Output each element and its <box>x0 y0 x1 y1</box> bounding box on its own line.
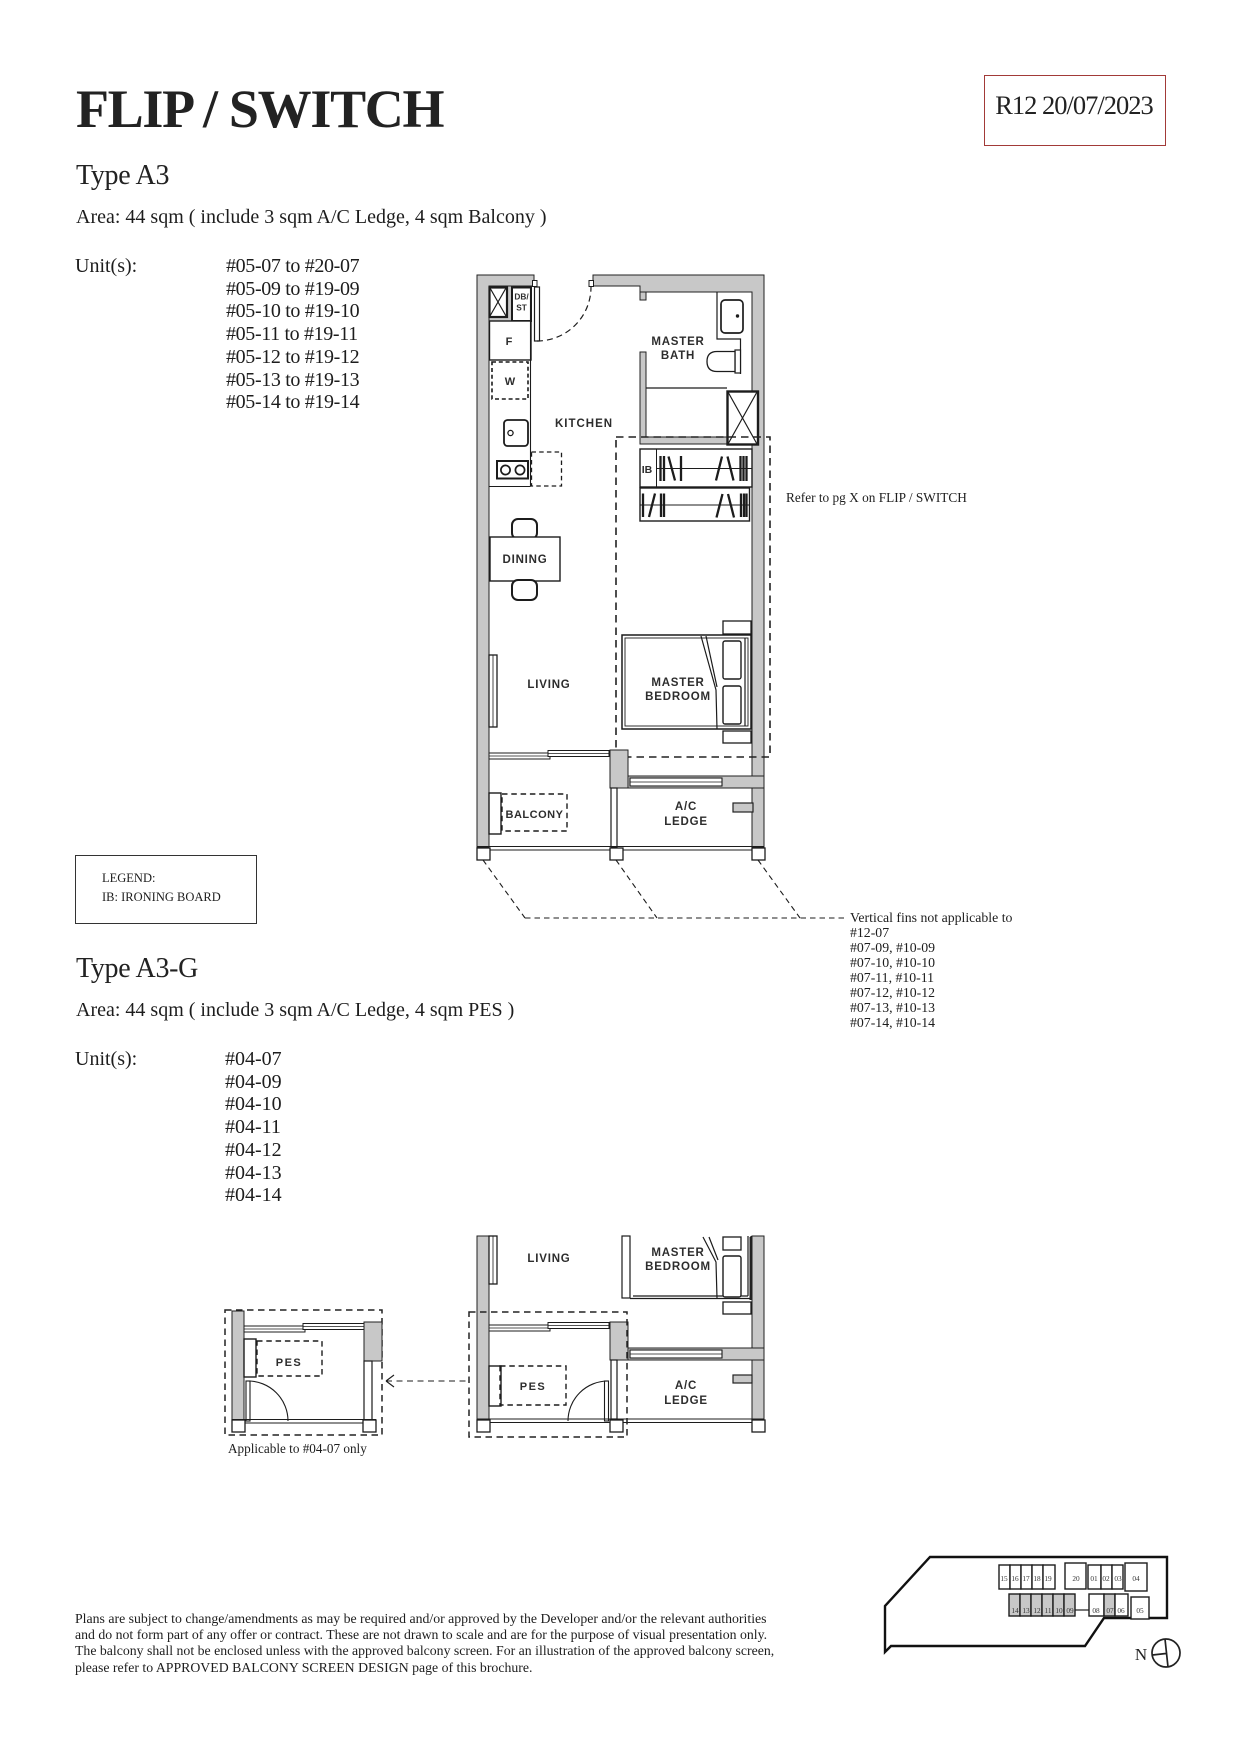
svg-text:MASTER: MASTER <box>651 336 704 348</box>
svg-text:09: 09 <box>1066 1606 1074 1615</box>
svg-text:LEDGE: LEDGE <box>664 1395 708 1407</box>
svg-text:02: 02 <box>1102 1574 1110 1583</box>
svg-text:10: 10 <box>1055 1606 1063 1615</box>
svg-text:LIVING: LIVING <box>527 1253 570 1265</box>
svg-text:18: 18 <box>1033 1574 1041 1583</box>
svg-text:11: 11 <box>1044 1606 1051 1615</box>
svg-text:BATH: BATH <box>661 350 695 362</box>
svg-text:MASTER: MASTER <box>651 677 704 689</box>
svg-text:15: 15 <box>1000 1574 1008 1583</box>
svg-text:LEDGE: LEDGE <box>664 816 708 828</box>
svg-text:16: 16 <box>1011 1574 1019 1583</box>
svg-text:17: 17 <box>1022 1574 1030 1583</box>
svg-text:ST: ST <box>516 303 527 313</box>
svg-text:01: 01 <box>1090 1574 1098 1583</box>
svg-text:N: N <box>1135 1645 1147 1664</box>
svg-text:12: 12 <box>1033 1606 1041 1615</box>
svg-text:A/C: A/C <box>675 801 697 813</box>
svg-text:06: 06 <box>1117 1606 1125 1615</box>
svg-text:13: 13 <box>1022 1606 1030 1615</box>
svg-text:19: 19 <box>1044 1574 1052 1583</box>
svg-text:PES: PES <box>520 1381 547 1393</box>
svg-text:07: 07 <box>1106 1606 1114 1615</box>
svg-text:F: F <box>506 336 513 348</box>
svg-text:LIVING: LIVING <box>527 679 570 691</box>
svg-text:20: 20 <box>1072 1574 1080 1583</box>
svg-text:BEDROOM: BEDROOM <box>645 691 711 703</box>
svg-text:BEDROOM: BEDROOM <box>645 1261 711 1273</box>
svg-text:MASTER: MASTER <box>651 1247 704 1259</box>
svg-text:08: 08 <box>1092 1606 1100 1615</box>
svg-text:PES: PES <box>276 1357 303 1369</box>
svg-text:04: 04 <box>1132 1574 1140 1583</box>
svg-text:BALCONY: BALCONY <box>506 809 564 821</box>
svg-text:KITCHEN: KITCHEN <box>555 418 613 430</box>
svg-text:DB/: DB/ <box>514 292 529 302</box>
svg-text:DINING: DINING <box>502 554 547 566</box>
svg-text:05: 05 <box>1136 1606 1144 1615</box>
svg-text:14: 14 <box>1011 1606 1019 1615</box>
svg-text:03: 03 <box>1114 1574 1122 1583</box>
svg-text:W: W <box>505 376 516 388</box>
svg-text:IB: IB <box>642 464 653 476</box>
svg-text:A/C: A/C <box>675 1380 697 1392</box>
